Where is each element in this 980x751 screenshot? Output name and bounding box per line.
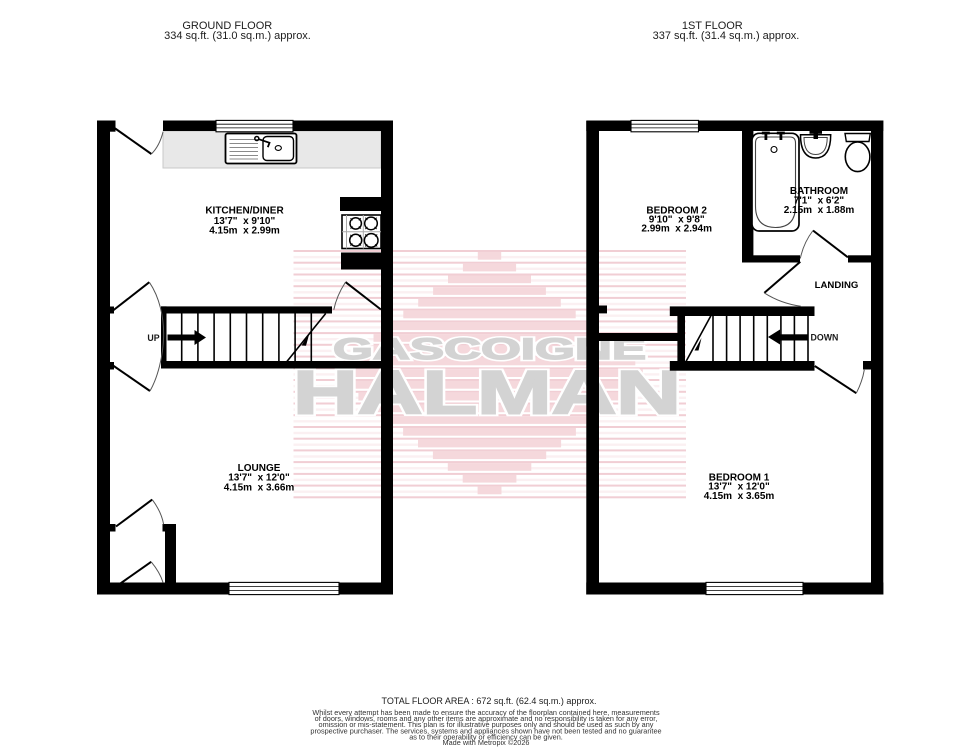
svg-text:4.15m x 3.66m: 4.15m x 3.66m [224, 482, 295, 493]
svg-text:4.15m x 3.65m: 4.15m x 3.65m [704, 491, 775, 502]
svg-text:334 sq.ft. (31.0 sq.m.) approx: 334 sq.ft. (31.0 sq.m.) approx. [164, 30, 311, 42]
svg-text:337 sq.ft. (31.4 sq.m.) approx: 337 sq.ft. (31.4 sq.m.) approx. [653, 30, 800, 42]
svg-text:2.15m x 1.88m: 2.15m x 1.88m [784, 205, 855, 216]
svg-text:LANDING: LANDING [815, 280, 859, 291]
svg-text:4.15m x 2.99m: 4.15m x 2.99m [209, 225, 280, 236]
svg-text:TOTAL FLOOR AREA : 672 sq.ft.: TOTAL FLOOR AREA : 672 sq.ft. (62.4 sq.m… [382, 696, 597, 706]
svg-text:Made with Metropix ©2026: Made with Metropix ©2026 [443, 738, 530, 747]
svg-text:2.99m x 2.94m: 2.99m x 2.94m [641, 224, 712, 235]
svg-text:UP: UP [147, 333, 159, 343]
svg-text:DOWN: DOWN [811, 333, 839, 343]
svg-text:HALMAN: HALMAN [293, 359, 681, 427]
